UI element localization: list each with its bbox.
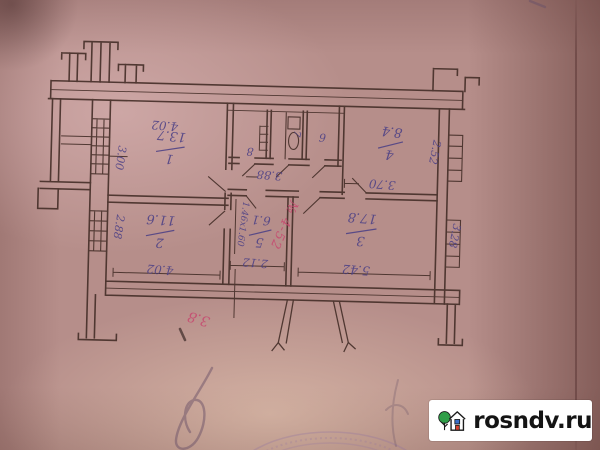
room-number: 1 bbox=[165, 150, 175, 166]
room-7-label: 7 bbox=[290, 129, 302, 138]
roof-step bbox=[433, 69, 480, 92]
rosndv-logo-icon bbox=[438, 404, 468, 437]
building-contour bbox=[38, 98, 93, 209]
chimney-icon bbox=[118, 64, 143, 83]
watermark-site-text: rosndv.ru bbox=[473, 408, 592, 434]
window-symbol bbox=[91, 119, 110, 174]
room-4-label: 4 8.4 bbox=[377, 122, 405, 162]
room-6-label: 6 bbox=[318, 130, 326, 144]
dim-label: 4.02 bbox=[151, 118, 180, 134]
chimney-icon bbox=[438, 304, 463, 346]
house-window bbox=[455, 419, 460, 423]
chimney-icon bbox=[83, 41, 118, 82]
house-roof bbox=[449, 412, 465, 419]
room-2-label: 2 11.6 bbox=[145, 211, 176, 251]
dim-label: 2.88 bbox=[110, 213, 127, 240]
room-number: 2 bbox=[155, 234, 165, 250]
room-area: 17.8 bbox=[347, 209, 377, 226]
room-area: 11.6 bbox=[146, 211, 176, 228]
room-number: 5 bbox=[255, 234, 264, 250]
chimney-icon bbox=[78, 294, 117, 340]
chimney-icon bbox=[61, 53, 86, 82]
apartment-number-note: № 4-52 bbox=[266, 197, 301, 251]
house-door bbox=[456, 425, 460, 430]
dim-label: 3.70 bbox=[368, 176, 396, 192]
stamp-mark-icon bbox=[228, 432, 432, 450]
floor-plan-drawing: 1 13.7 4.02 3.00 2 11.6 4.02 2.88 3 17.8… bbox=[0, 0, 600, 450]
dim-label: 4.02 bbox=[146, 262, 175, 278]
dim-label: 3.28 bbox=[446, 223, 464, 250]
room-8-label: 8 bbox=[246, 145, 254, 159]
dim-label: 5.42 bbox=[341, 262, 370, 279]
door-swing bbox=[243, 164, 325, 178]
entry-porch bbox=[272, 300, 356, 353]
wall-room1-room2 bbox=[108, 195, 228, 205]
photographed-floor-plan: { "plan": { "ink_colors": { "walls": "#4… bbox=[0, 0, 600, 450]
outer-wall-right bbox=[434, 109, 449, 304]
dim-label: 2.52 bbox=[426, 138, 444, 166]
red-dim-leader bbox=[234, 270, 235, 318]
room-number: 4 bbox=[385, 146, 396, 162]
outer-wall-left bbox=[86, 100, 110, 338]
corridor-dim-label: 3.88 bbox=[256, 167, 283, 183]
dim-label: 2.12 bbox=[242, 255, 270, 271]
tree-icon bbox=[439, 412, 451, 424]
walls bbox=[34, 40, 480, 355]
window-symbol bbox=[89, 211, 108, 251]
closet-dim-label: 1.46x1.60 bbox=[234, 201, 250, 247]
wall-hall-left bbox=[223, 103, 234, 284]
door-swing bbox=[207, 177, 225, 225]
window-symbol bbox=[448, 135, 463, 181]
room-number: 3 bbox=[356, 232, 365, 248]
room-area: 6.1 bbox=[251, 212, 271, 227]
room-area: 8.4 bbox=[381, 122, 403, 139]
watermark-badge: rosndv.ru bbox=[429, 400, 592, 441]
room-3-label: 3 17.8 bbox=[345, 209, 378, 249]
red-measure-note: 3.8 bbox=[186, 308, 212, 330]
dim-label: 3.00 bbox=[112, 145, 128, 171]
wall-middle bbox=[228, 189, 437, 200]
